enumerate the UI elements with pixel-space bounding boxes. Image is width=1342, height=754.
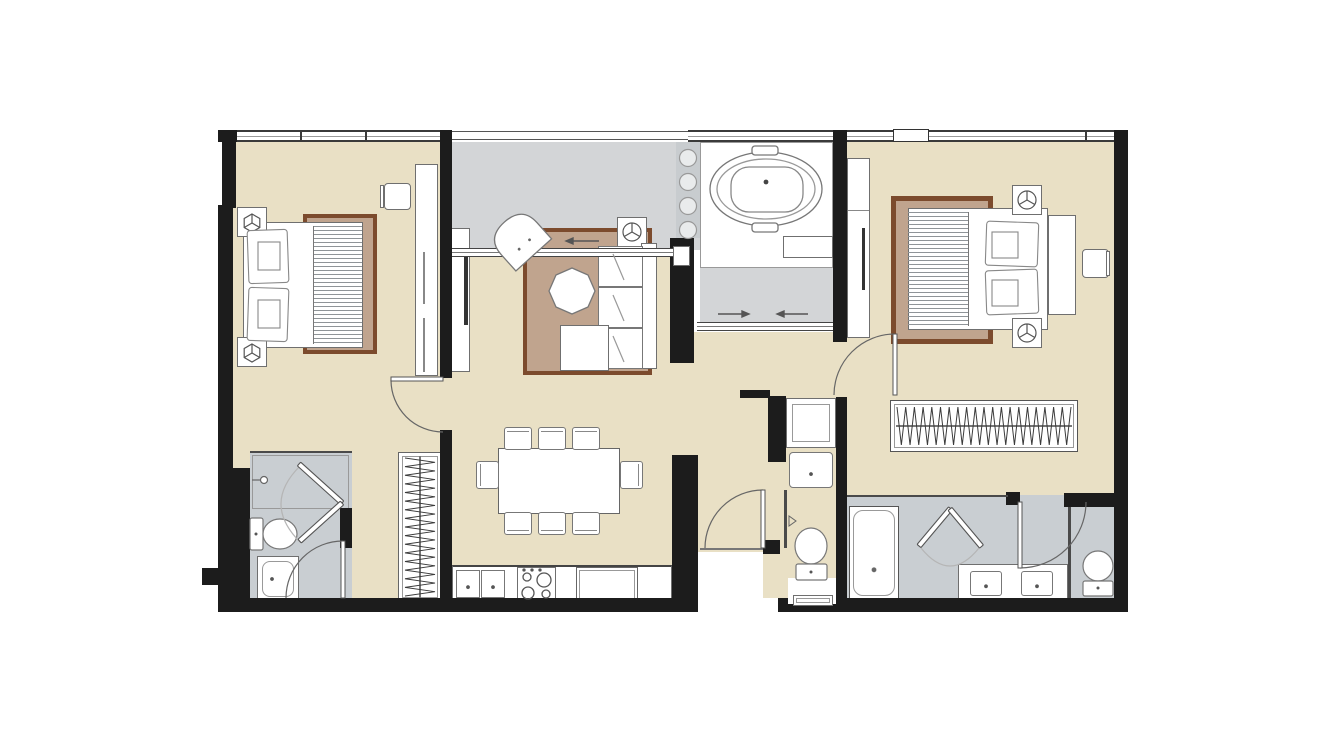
symbol-overlay <box>0 0 1342 754</box>
shower-head <box>252 477 268 484</box>
armchair <box>486 206 551 271</box>
master-pillows <box>985 221 1039 315</box>
bedroom2-pillows <box>247 229 289 341</box>
stove-burners <box>522 569 551 599</box>
door-bathroom2 <box>286 541 345 598</box>
oval-bathtub <box>710 146 822 232</box>
lamp-icon-bedroom2-top <box>244 214 260 232</box>
toilet-wc <box>795 528 827 580</box>
lamp-icon-bedroom2-bottom <box>244 344 260 362</box>
door-master-bedroom <box>834 334 897 395</box>
master-wardrobe-hangers <box>897 407 1071 445</box>
door-entry <box>705 490 765 548</box>
bifold-door-masterbath <box>917 507 983 566</box>
bifold-door-bathroom2 <box>281 462 344 543</box>
hanger-closet-hangers <box>405 458 435 596</box>
pebble-stones <box>680 150 697 239</box>
door-masterbath <box>1018 502 1086 568</box>
lamp-icon-master-bottom <box>1018 324 1036 342</box>
sofa-cushion-marks <box>613 254 624 362</box>
toilet-masterbath <box>1083 551 1113 596</box>
lamp-icon-master-top <box>1018 191 1036 209</box>
mirror-arrow <box>789 516 796 526</box>
door-bedroom2 <box>391 377 443 432</box>
toilet-bathroom2 <box>250 518 297 550</box>
floor-plan <box>0 0 1342 754</box>
octagon-side-table <box>549 268 595 314</box>
lamp-icon-living <box>623 223 641 241</box>
